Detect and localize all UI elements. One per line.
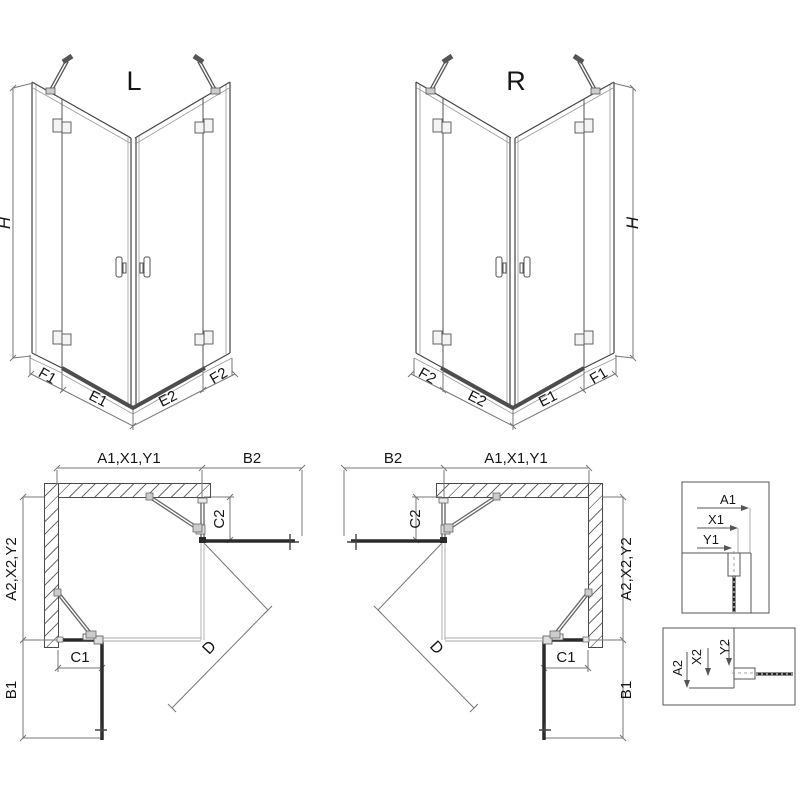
shower-enclosure-diagram: L R H H F1 E1 E2 F2 F2 E2 E1 F1 A1,X1,Y1…: [0, 0, 800, 800]
plan-right-fixed-side-label: C2: [407, 509, 424, 528]
plan-right-fixed-bottom-label: C1: [556, 649, 575, 666]
plan-right-door-top-label: B2: [384, 450, 402, 467]
detail-top-dim-y1: Y1: [703, 532, 719, 547]
detail-top-dim-a1: A1: [720, 492, 736, 507]
plan-right-depth-side-label: A2,X2,Y2: [618, 537, 635, 600]
perspective-left-dim-f1: F1: [35, 364, 59, 387]
plan-right-width-top-label: A1,X1,Y1: [484, 450, 547, 467]
plan-right-door-bottom-label: B1: [618, 681, 635, 699]
detail-bottom-dim-y2: Y2: [717, 639, 732, 655]
plan-left-lines: [20, 465, 305, 741]
plan-left-fixed-bottom-label: C1: [70, 649, 89, 666]
detail-bottom-dim-x2: X2: [689, 649, 704, 665]
perspective-left-title: L: [126, 66, 141, 96]
plan-left-depth-side-label: A2,X2,Y2: [3, 537, 20, 600]
perspective-left-dim-f2: F2: [207, 364, 231, 387]
perspective-right-dim-f1: F1: [587, 364, 611, 387]
plan-right-lines: [341, 465, 626, 741]
perspective-right-height-label: H: [623, 216, 642, 229]
plan-left-diagonal-label: D: [200, 638, 220, 658]
plan-left-width-top-label: A1,X1,Y1: [97, 450, 160, 467]
plan-right-diagonal-label: D: [426, 638, 446, 658]
diagram-canvas: L R H H F1 E1 E2 F2 F2 E2 E1 F1 A1,X1,Y1…: [0, 0, 800, 800]
plan-left-door-top-label: B2: [243, 450, 261, 467]
perspective-left-height-label: H: [0, 216, 14, 229]
perspective-left-dim-e2: E2: [156, 387, 180, 410]
perspective-right-dim-f2: F2: [415, 364, 439, 387]
plan-left-door-bottom-label: B1: [3, 681, 20, 699]
perspective-right-title: R: [506, 66, 526, 96]
detail-top-dim-x1: X1: [708, 512, 724, 527]
plan-left-fixed-side-label: C2: [211, 509, 228, 528]
detail-bottom-dim-a2: A2: [670, 660, 685, 676]
